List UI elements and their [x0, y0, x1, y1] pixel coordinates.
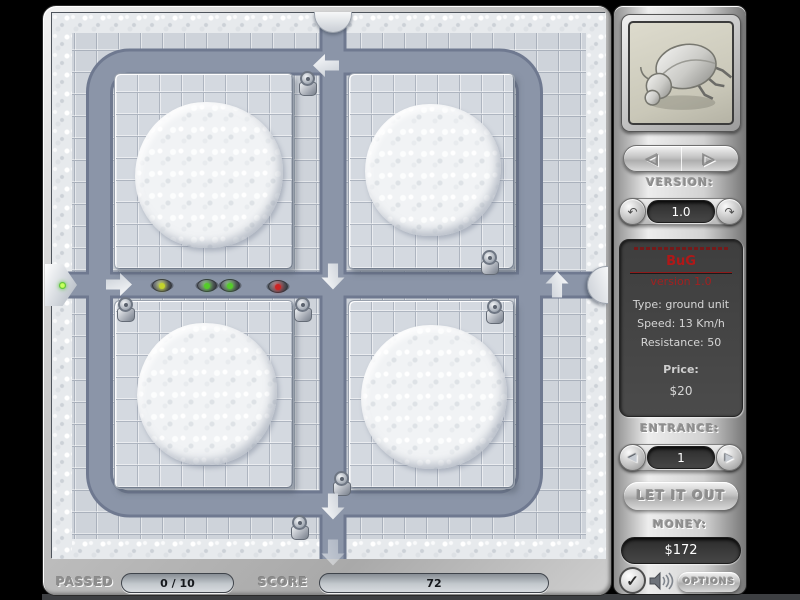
passed-label: PASSED — [56, 575, 114, 589]
unit-version-line: version 1.0 — [620, 275, 742, 288]
turret-barrel-icon — [292, 515, 307, 530]
unit-speed: Speed: 13 Km/h — [620, 317, 742, 330]
next-arrow-icon: ▷ — [703, 150, 716, 168]
check-icon: ✓ — [626, 572, 639, 590]
unit-resistance: Resistance: 50 — [620, 336, 742, 349]
entrance-stepper: ◀ 1 ▶ — [619, 444, 743, 471]
direction-arrow-icon — [106, 273, 132, 296]
turret[interactable] — [290, 515, 310, 540]
direction-arrow-icon — [546, 272, 569, 298]
prev-unit-button[interactable]: ◁ — [624, 146, 681, 171]
entrance-next-button[interactable]: ▶ — [716, 444, 743, 471]
turret[interactable] — [298, 71, 318, 96]
turret-barrel-icon — [300, 71, 315, 86]
money-display: $172 — [621, 537, 741, 564]
bug-enemy — [220, 279, 240, 292]
let-it-out-button[interactable]: LET IT OUT — [624, 482, 738, 510]
info-marquee — [634, 247, 728, 250]
redo-arrow-icon: ↷ — [724, 205, 734, 219]
options-label: OPTIONS — [683, 577, 735, 587]
version-value-field: 1.0 — [647, 200, 715, 223]
bug-enemy — [268, 280, 288, 293]
undo-arrow-icon: ↶ — [627, 205, 637, 219]
prev-arrow-icon: ◁ — [646, 150, 659, 168]
bug-enemy — [197, 279, 217, 292]
unit-type: Type: ground unit — [620, 298, 742, 311]
turret[interactable] — [116, 297, 136, 322]
turret-barrel-icon — [334, 471, 349, 486]
entrance-prev-button[interactable]: ◀ — [619, 444, 646, 471]
turret-barrel-icon — [482, 250, 497, 265]
passed-counter: 0 / 10 — [121, 573, 234, 593]
unit-preview-image — [628, 21, 734, 125]
price-label: Price: — [620, 363, 742, 376]
entrance-value: 1 — [677, 451, 685, 465]
turret[interactable] — [332, 471, 352, 496]
let-it-out-label: LET IT OUT — [636, 489, 725, 504]
entrance-label: ENTRANCE: — [614, 422, 746, 435]
beetle-icon — [630, 23, 734, 124]
unit-nav: ◁ ▷ — [623, 145, 739, 172]
turret[interactable] — [480, 250, 500, 275]
direction-arrow-icon — [322, 540, 345, 566]
turret[interactable] — [485, 299, 505, 324]
status-bar: PASSED 0 / 10 SCORE 72 — [43, 568, 613, 597]
unit-preview-frame — [621, 14, 741, 132]
control-sidebar: ◁ ▷ VERSION: ↶ 1.0 ↷ BuG version 1.0 Typ… — [613, 5, 747, 595]
turret[interactable] — [293, 297, 313, 322]
options-button[interactable]: OPTIONS — [678, 572, 740, 592]
version-value: 1.0 — [671, 205, 690, 219]
version-decrease-button[interactable]: ↶ — [619, 198, 646, 225]
board-frame: PASSED 0 / 10 SCORE 72 — [42, 5, 612, 596]
direction-arrow-icon — [322, 494, 345, 520]
turret-barrel-icon — [487, 299, 502, 314]
score-value: 72 — [426, 577, 441, 590]
money-label: MONEY: — [614, 518, 746, 531]
direction-arrow-icon — [322, 264, 345, 290]
unit-info-panel: BuG version 1.0 Type: ground unit Speed:… — [619, 239, 743, 417]
money-value: $172 — [664, 543, 697, 558]
turret-barrel-icon — [295, 297, 310, 312]
left-triangle-icon: ◀ — [628, 451, 636, 464]
game-board[interactable] — [51, 12, 605, 558]
score-label: SCORE — [258, 575, 308, 589]
game-window: PASSED 0 / 10 SCORE 72 — [0, 0, 800, 600]
entrance-value-field: 1 — [647, 446, 715, 469]
bug-enemy — [152, 279, 172, 292]
version-increase-button[interactable]: ↷ — [716, 198, 743, 225]
passed-value: 0 / 10 — [160, 577, 195, 590]
sound-toggle[interactable] — [649, 570, 675, 596]
confirm-button[interactable]: ✓ — [619, 567, 646, 594]
unit-name: BuG — [620, 254, 742, 269]
score-counter: 72 — [319, 573, 549, 593]
spawn-spark — [59, 282, 66, 289]
next-unit-button[interactable]: ▷ — [681, 146, 738, 171]
version-stepper: ↶ 1.0 ↷ — [619, 198, 743, 225]
right-triangle-icon: ▶ — [725, 451, 733, 464]
info-separator — [630, 272, 732, 273]
turret-barrel-icon — [118, 297, 133, 312]
version-label: VERSION: — [614, 176, 746, 189]
speaker-icon — [649, 570, 675, 592]
price-value: $20 — [620, 384, 742, 398]
